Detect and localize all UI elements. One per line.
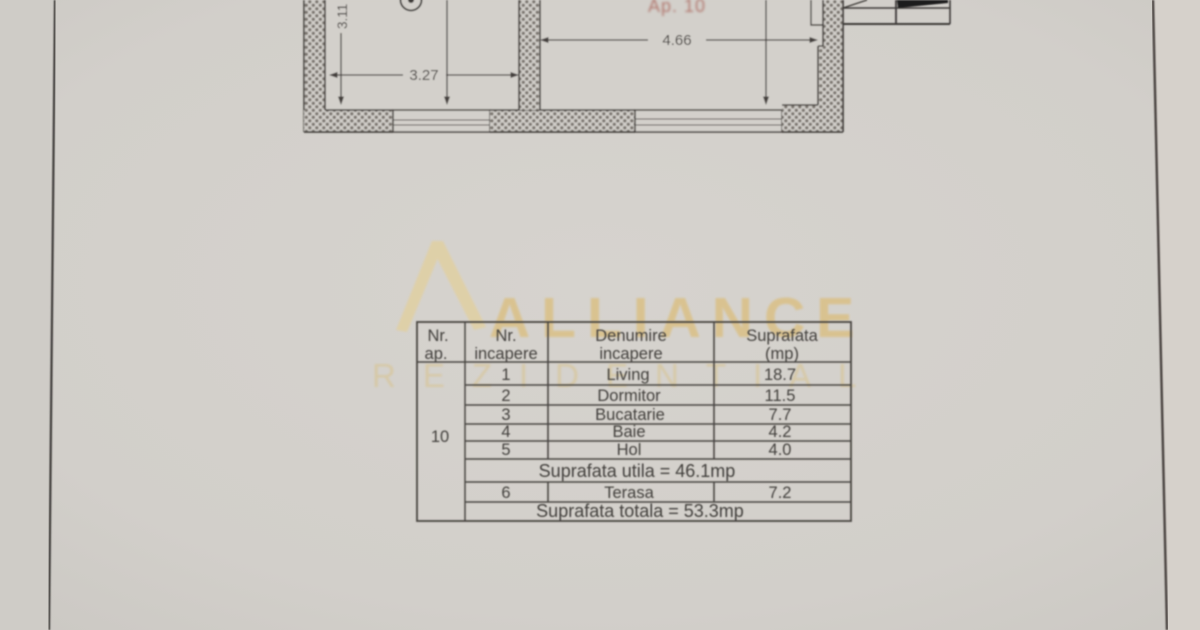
svg-text:Dormitor: Dormitor: [597, 387, 661, 405]
svg-text:11.5: 11.5: [765, 387, 796, 405]
svg-text:4.2: 4.2: [769, 423, 792, 441]
svg-text:Bucatarie: Bucatarie: [595, 406, 665, 424]
svg-text:4.0: 4.0: [769, 441, 792, 459]
svg-text:ap.: ap.: [425, 345, 448, 363]
svg-text:incapere: incapere: [474, 345, 537, 363]
svg-text:Suprafata: Suprafata: [746, 327, 818, 345]
svg-text:Ap. 10: Ap. 10: [648, 0, 706, 16]
svg-text:6: 6: [501, 484, 510, 502]
svg-text:7.7: 7.7: [769, 406, 792, 424]
svg-text:Nr.: Nr.: [495, 327, 516, 345]
svg-text:4: 4: [501, 423, 510, 441]
svg-text:Hol: Hol: [617, 441, 642, 459]
svg-text:2: 2: [501, 387, 510, 405]
svg-text:incapere: incapere: [599, 345, 662, 363]
svg-text:3.27: 3.27: [409, 67, 438, 84]
svg-text:Suprafata utila = 46.1mp: Suprafata utila = 46.1mp: [539, 461, 736, 481]
svg-text:3.11: 3.11: [335, 4, 350, 29]
svg-text:5: 5: [501, 441, 510, 459]
svg-text:Living: Living: [606, 366, 649, 384]
svg-text:Baie: Baie: [612, 423, 645, 441]
svg-text:4.66: 4.66: [662, 32, 691, 49]
svg-text:10: 10: [431, 428, 449, 446]
svg-text:18.7: 18.7: [764, 366, 796, 384]
svg-text:Nr.: Nr.: [427, 327, 448, 345]
svg-text:1: 1: [501, 366, 510, 384]
svg-text:3: 3: [501, 406, 510, 424]
svg-text:Terasa: Terasa: [604, 484, 654, 502]
svg-text:Suprafata totala = 53.3mp: Suprafata totala = 53.3mp: [536, 501, 744, 521]
svg-text:7.2: 7.2: [769, 484, 792, 502]
svg-text:(mp): (mp): [765, 345, 799, 363]
svg-text:Denumire: Denumire: [595, 327, 667, 345]
